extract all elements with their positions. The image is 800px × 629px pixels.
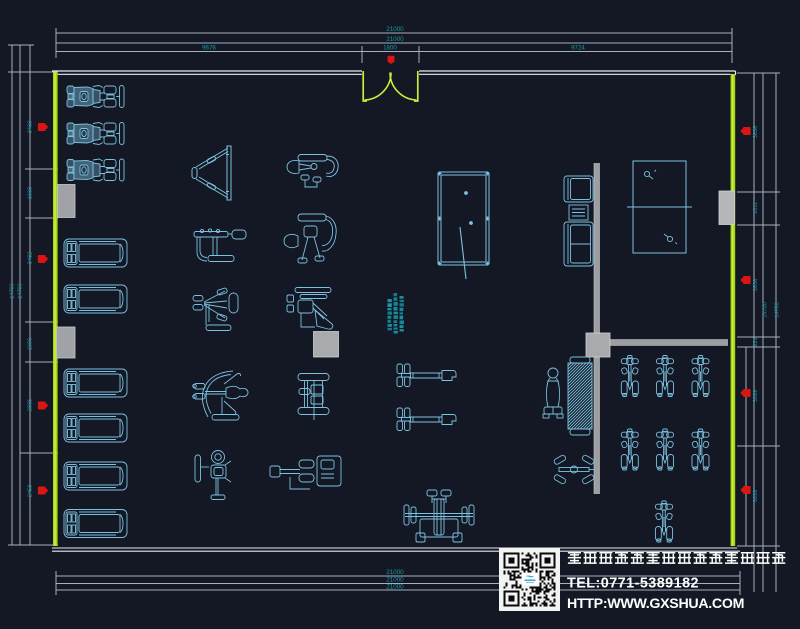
svg-text:21000: 21000 [386,36,404,43]
svg-text:3433: 3433 [28,121,34,133]
svg-text:3432: 3432 [28,252,34,264]
svg-text:21000: 21000 [386,569,404,576]
svg-text:14700: 14700 [18,283,24,299]
svg-text:2885: 2885 [28,399,34,411]
svg-text:1011: 1011 [753,202,759,214]
svg-text:3099: 3099 [753,390,759,402]
svg-text:221: 221 [753,337,759,346]
svg-text:1006: 1006 [28,338,34,350]
svg-text:3636: 3636 [753,279,759,291]
svg-text:21000: 21000 [386,584,404,591]
svg-text:3636: 3636 [753,126,759,138]
svg-text:1800: 1800 [383,45,397,52]
svg-text:14700: 14700 [763,302,769,318]
svg-text:3099: 3099 [753,490,759,502]
svg-text:1633: 1633 [28,187,34,199]
svg-text:9676: 9676 [202,45,216,52]
svg-text:HTTP:WWW.GXSHUA.COM: HTTP:WWW.GXSHUA.COM [567,596,744,612]
svg-text:21000: 21000 [386,26,404,33]
svg-text:9724: 9724 [571,45,585,52]
svg-text:TEL:0771-5389182: TEL:0771-5389182 [567,576,699,592]
svg-text:21000: 21000 [386,577,404,584]
svg-text:14700: 14700 [775,302,781,318]
svg-text:14700: 14700 [10,283,16,299]
svg-text:2453: 2453 [28,485,34,497]
